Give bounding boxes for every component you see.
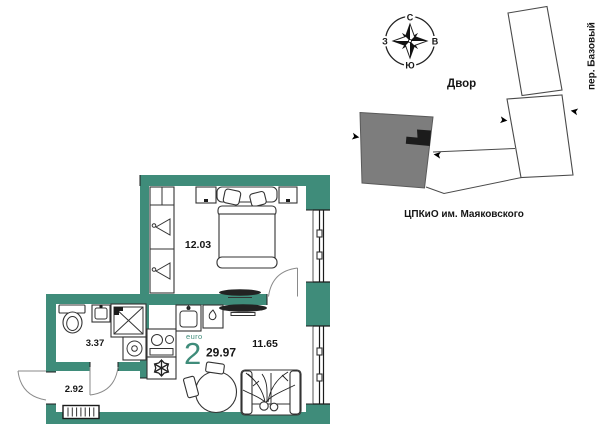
total-area-label: 29.97 <box>206 346 236 360</box>
washing-machine-icon <box>123 337 146 360</box>
plan-drawing: 12.03 11.65 3.37 2.92 euro 2 29.97 С В Ю… <box>0 0 600 431</box>
kitchen-sink-icon <box>176 305 201 331</box>
site-boundary-line <box>426 178 522 194</box>
building-neighbor-top <box>508 7 562 96</box>
stove-icon <box>147 329 176 357</box>
park-label: ЦПКиО им. Маяковского <box>404 209 524 220</box>
chair <box>205 362 224 374</box>
fridge-icon <box>147 357 176 379</box>
entry-doormat <box>63 406 99 419</box>
nightstand-left <box>196 187 216 203</box>
bed <box>217 187 277 268</box>
window-bedroom <box>313 210 330 282</box>
dining-table <box>196 372 237 413</box>
nightstand-right <box>279 187 297 203</box>
building-subject <box>360 113 433 189</box>
rooms-count-label: 2 <box>184 336 201 371</box>
wardrobe <box>150 187 174 293</box>
chair <box>183 376 199 398</box>
tv-living-icon <box>219 304 267 315</box>
site-boundary-line <box>433 149 515 153</box>
compass-rose-icon: С В Ю З <box>382 13 439 71</box>
apartment-floorplan: 12.03 11.65 3.37 2.92 euro 2 29.97 <box>18 175 330 424</box>
sofa <box>241 370 301 415</box>
compass-south-label: Ю <box>405 61 414 71</box>
bathroom-sink-icon <box>92 305 110 322</box>
entry-door <box>18 371 46 400</box>
compass-west-label: З <box>382 37 388 47</box>
bedroom-door <box>269 268 298 297</box>
entrance-arrow <box>570 107 584 116</box>
building-neighbor-mid <box>507 95 573 178</box>
entrance-arrow <box>345 132 359 141</box>
bathroom-area-label: 3.37 <box>86 338 105 349</box>
compass-north-label: С <box>407 13 414 23</box>
bathroom-door <box>90 367 118 395</box>
living-area-label: 11.65 <box>252 338 278 350</box>
shower-icon <box>111 304 146 337</box>
hall-area-label: 2.92 <box>65 384 84 395</box>
street-label: пер. Базовый <box>587 22 598 90</box>
site-plan: С В Ю З Двор пер. Базовый ЦПКиО им. Маяк… <box>345 7 597 221</box>
floorplan-page: 12.03 11.65 3.37 2.92 euro 2 29.97 С В Ю… <box>0 0 600 431</box>
toilet-icon <box>59 305 85 333</box>
window-living <box>313 326 330 404</box>
courtyard-label: Двор <box>447 78 476 90</box>
bedroom-area-label: 12.03 <box>185 239 211 251</box>
compass-east-label: В <box>432 37 439 47</box>
entrance-arrow <box>494 116 508 124</box>
